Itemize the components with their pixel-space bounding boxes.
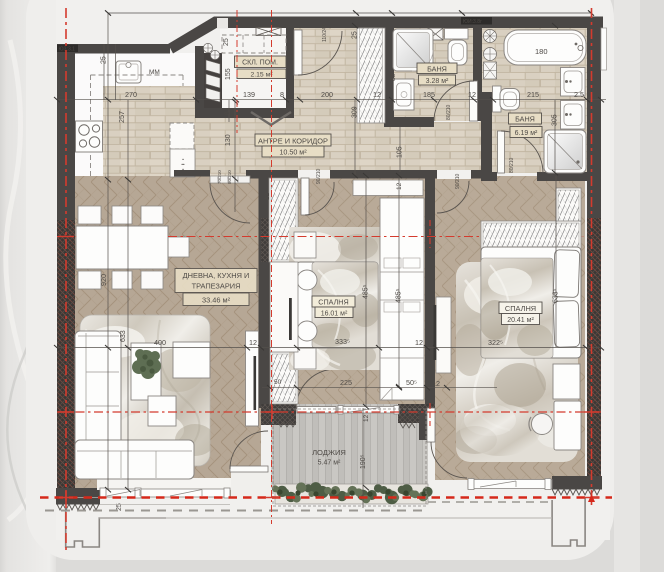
svg-text:12: 12 [468, 90, 476, 99]
svg-text:16.01 м²: 16.01 м² [321, 310, 348, 317]
svg-text:8: 8 [280, 90, 284, 99]
svg-text:185: 185 [423, 90, 435, 99]
svg-text:50⁵: 50⁵ [406, 378, 417, 387]
svg-text:8: 8 [224, 111, 231, 115]
svg-text:309: 309 [352, 106, 359, 118]
svg-text:ТРАПЕЗАРИЯ: ТРАПЕЗАРИЯ [192, 282, 241, 291]
svg-text:АНТРЕ И КОРИДОР: АНТРЕ И КОРИДОР [258, 136, 328, 145]
svg-text:ДНЕВНА, КУХНЯ И: ДНЕВНА, КУХНЯ И [183, 271, 250, 280]
svg-text:70/210: 70/210 [217, 170, 222, 184]
svg-text:333⁵: 333⁵ [335, 337, 350, 346]
svg-text:90/210: 90/210 [316, 168, 322, 184]
svg-text:12: 12 [415, 338, 423, 347]
svg-text:485⁵: 485⁵ [396, 288, 403, 303]
svg-text:80/210: 80/210 [446, 104, 452, 120]
svg-text:10.50 м²: 10.50 м² [279, 148, 307, 157]
svg-text:25: 25 [352, 31, 359, 39]
svg-text:400: 400 [154, 338, 166, 347]
svg-text:12: 12 [249, 338, 257, 347]
svg-text:139: 139 [243, 90, 255, 99]
svg-text:270: 270 [125, 90, 137, 99]
svg-text:12: 12 [264, 192, 271, 200]
svg-text:12: 12 [432, 379, 440, 388]
svg-text:2.15 м²: 2.15 м² [250, 72, 273, 79]
svg-text:25: 25 [223, 38, 230, 46]
svg-text:СПАЛНЯ: СПАЛНЯ [318, 298, 348, 307]
svg-text:155: 155 [225, 68, 232, 80]
svg-text:90/210: 90/210 [398, 416, 414, 422]
svg-text:12: 12 [363, 414, 370, 422]
svg-text:3.28 м²: 3.28 м² [426, 78, 449, 85]
svg-text:ЮЗ:3.1: ЮЗ:3.1 [59, 47, 76, 53]
svg-text:ЮИ:3.8г: ЮИ:3.8г [463, 19, 482, 25]
svg-text:88: 88 [390, 73, 397, 81]
svg-text:257: 257 [117, 111, 126, 123]
svg-text:6.19 м²: 6.19 м² [515, 130, 538, 137]
svg-text:215: 215 [527, 90, 539, 99]
svg-text:225: 225 [340, 378, 352, 387]
svg-text:190⁵: 190⁵ [360, 454, 367, 469]
svg-text:920: 920 [99, 274, 108, 286]
svg-text:2.5: 2.5 [574, 90, 584, 99]
svg-text:MM: MM [149, 69, 160, 76]
svg-text:110/240: 110/240 [322, 24, 328, 42]
svg-text:БАНЯ: БАНЯ [515, 115, 535, 124]
svg-text:485⁵: 485⁵ [363, 284, 370, 299]
svg-text:СПАЛНЯ: СПАЛНЯ [505, 304, 536, 313]
svg-text:33.46 м²: 33.46 м² [202, 296, 231, 305]
svg-text:5.47 м²: 5.47 м² [318, 460, 341, 467]
svg-text:80/210: 80/210 [227, 170, 232, 184]
svg-text:БАНЯ: БАНЯ [427, 64, 447, 73]
svg-text:25: 25 [101, 56, 108, 64]
svg-text:ЛОДЖИЯ: ЛОДЖИЯ [312, 448, 346, 457]
svg-text:80/210: 80/210 [509, 157, 515, 173]
svg-text:200: 200 [321, 90, 333, 99]
svg-text:12: 12 [373, 90, 381, 99]
svg-text:20.41 м²: 20.41 м² [507, 317, 534, 324]
svg-text:90/210: 90/210 [455, 173, 461, 189]
svg-text:305: 305 [552, 114, 559, 126]
svg-text:180: 180 [535, 47, 548, 56]
svg-text:633: 633 [120, 330, 127, 342]
svg-text:322⁵: 322⁵ [488, 338, 503, 347]
svg-text:12: 12 [396, 182, 403, 190]
svg-text:50: 50 [274, 379, 282, 386]
svg-text:105: 105 [397, 146, 404, 158]
svg-text:130: 130 [225, 134, 232, 146]
svg-text:633⁵: 633⁵ [553, 288, 560, 303]
svg-text:СКЛ. ПОМ.: СКЛ. ПОМ. [242, 60, 278, 67]
